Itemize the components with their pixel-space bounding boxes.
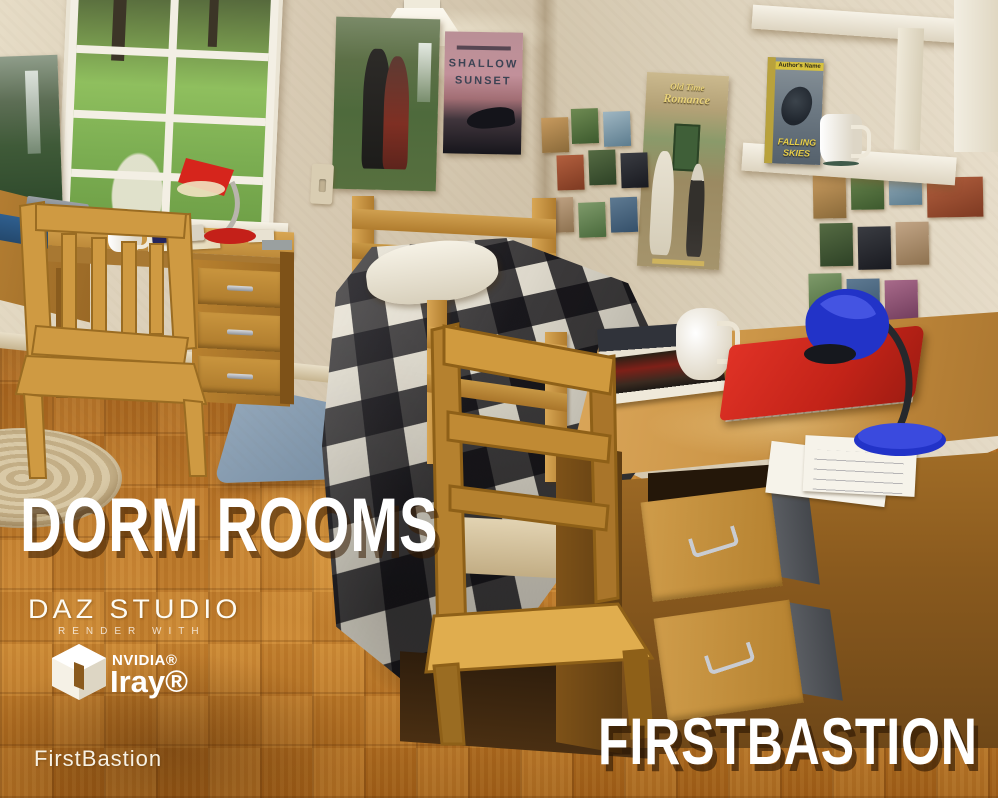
chair-slat	[122, 242, 136, 334]
chair-slat	[62, 234, 76, 330]
chair-top-rail	[444, 326, 614, 394]
shelf-mug	[820, 114, 862, 164]
chair-top-rail	[36, 204, 186, 238]
pinned-photo	[578, 202, 606, 238]
pinned-photo	[620, 152, 648, 188]
poster-figure-man	[685, 164, 706, 258]
wooden-chair-center	[404, 316, 674, 746]
shallow-sunset-poster: SHALLOW SUNSET	[443, 31, 523, 154]
poster-credit-bar	[652, 259, 705, 267]
chair-mid-rail	[448, 412, 610, 462]
lamp-base-top	[858, 423, 942, 449]
wall-shelf-side-panel	[954, 0, 998, 152]
pinned-photo	[571, 108, 599, 144]
pinned-photo	[556, 155, 584, 191]
chair-leg	[24, 394, 46, 478]
mug-base	[823, 161, 858, 166]
lamp-light	[177, 181, 225, 197]
daz-studio-logo: DAZ STUDIO	[28, 594, 242, 625]
chair-seat	[426, 604, 652, 672]
pinned-photo	[610, 197, 638, 233]
dorm-room-render: SHALLOW SUNSET Old Time Romance	[0, 0, 998, 798]
firstbastion-logo: FirstBastion	[34, 746, 162, 772]
pinned-photo	[896, 222, 930, 266]
book-author: Author's Name	[775, 61, 823, 71]
pinned-photo	[603, 111, 631, 147]
iray-cube-icon	[50, 642, 108, 702]
chair-leg	[434, 664, 464, 744]
pinned-photo	[541, 117, 569, 153]
wooden-chair-left	[6, 198, 216, 480]
light-switch-toggle	[318, 179, 326, 192]
tree-trunk	[207, 0, 219, 47]
poster-title-line: SUNSET	[444, 72, 522, 90]
poster-title-line: Romance	[645, 90, 728, 109]
book-cover-art	[775, 82, 817, 130]
firstbastion-name: FIRSTBASTION	[598, 708, 978, 774]
poster-tagline-bar	[456, 46, 511, 51]
drawer-handle	[227, 329, 253, 335]
wall-shelf-bracket	[894, 28, 924, 151]
chair-leg	[184, 400, 206, 476]
poster-waterfall	[417, 43, 431, 102]
lamp-shade-rim	[804, 344, 856, 364]
poster-title-line: SHALLOW	[444, 55, 522, 73]
drawer-handle	[227, 373, 253, 379]
mug-handle	[851, 125, 871, 158]
chair-seat	[16, 356, 206, 404]
photo-collage	[540, 96, 661, 246]
pinned-photo	[820, 223, 854, 267]
chair-slat	[92, 238, 106, 332]
pinned-photo	[858, 226, 892, 270]
product-title: DORM ROOMS	[20, 488, 438, 564]
chair-slat	[150, 244, 163, 334]
book-title-line: FALLING	[773, 137, 821, 149]
drawer-handle	[227, 285, 253, 291]
pinned-photo	[588, 149, 616, 185]
render-with-label: RENDER WITH	[58, 626, 206, 637]
iray-label: Iray®	[110, 664, 188, 700]
cube-groove	[74, 662, 84, 690]
white-jug	[676, 308, 732, 380]
blue-desk-lamp	[796, 282, 986, 468]
pinned-photo	[813, 175, 847, 219]
chair-mid-rail	[450, 486, 608, 530]
light-switch	[310, 163, 334, 204]
nature-poster	[0, 55, 63, 207]
book-title-line: SKIES	[772, 147, 820, 159]
falling-skies-book: Author's Name FALLING SKIES	[764, 57, 824, 165]
fantasy-couple-poster	[332, 17, 440, 192]
poster-sea-rock	[466, 105, 516, 130]
left-desk-side	[280, 252, 294, 405]
